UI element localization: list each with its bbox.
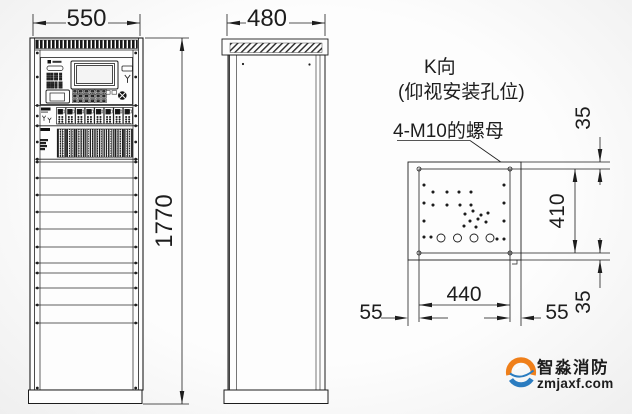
- side-body: [228, 55, 325, 390]
- dim-35-top-label: 35: [572, 106, 595, 129]
- lcd-screen: [77, 66, 113, 84]
- row2-logo-icon: [41, 108, 51, 111]
- drawing-canvas: 550 480 1770 K向 (仰视安装孔位) 4-M10的螺母 35 410…: [0, 0, 632, 414]
- watermark-site-text: zmjaxf.com: [537, 376, 614, 391]
- row3-logo-icon: [41, 128, 51, 131]
- dim-550-label: 550: [66, 5, 106, 32]
- dim-1770-label: 1770: [151, 194, 178, 247]
- vent-grille: [36, 40, 138, 49]
- side-screw-dot: [308, 63, 310, 65]
- technical-drawing: 550 480 1770 K向 (仰视安装孔位) 4-M10的螺母 35 410…: [0, 0, 632, 414]
- dim-440-label: 440: [446, 283, 481, 306]
- nut-note-label: 4-M10的螺母: [393, 120, 504, 142]
- side-vent-hatch: [230, 43, 322, 53]
- panel-logo-icon: [48, 60, 52, 64]
- watermark-logo-icon: [509, 360, 534, 385]
- dim-480-label: 480: [247, 5, 287, 32]
- dim-35-bottom-label: 35: [572, 290, 595, 313]
- dim-55-right-label: 55: [545, 301, 568, 324]
- front-base: [29, 390, 143, 404]
- watermark: 智淼消防 zmjaxf.com: [509, 357, 614, 391]
- side-base: [224, 390, 328, 404]
- watermark-brand-text: 智淼消防: [537, 357, 609, 377]
- side-view: [222, 14, 328, 404]
- emblem-icon: [118, 91, 127, 100]
- k-view-subtitle: (仰视安装孔位): [398, 81, 525, 103]
- switch-modules: [57, 108, 133, 125]
- dim-55-left-label: 55: [359, 301, 382, 324]
- dim-410-label: 410: [546, 193, 569, 228]
- mounting-plate: [408, 162, 521, 260]
- side-screw-dot: [242, 63, 244, 65]
- k-view-title: K向: [424, 56, 456, 78]
